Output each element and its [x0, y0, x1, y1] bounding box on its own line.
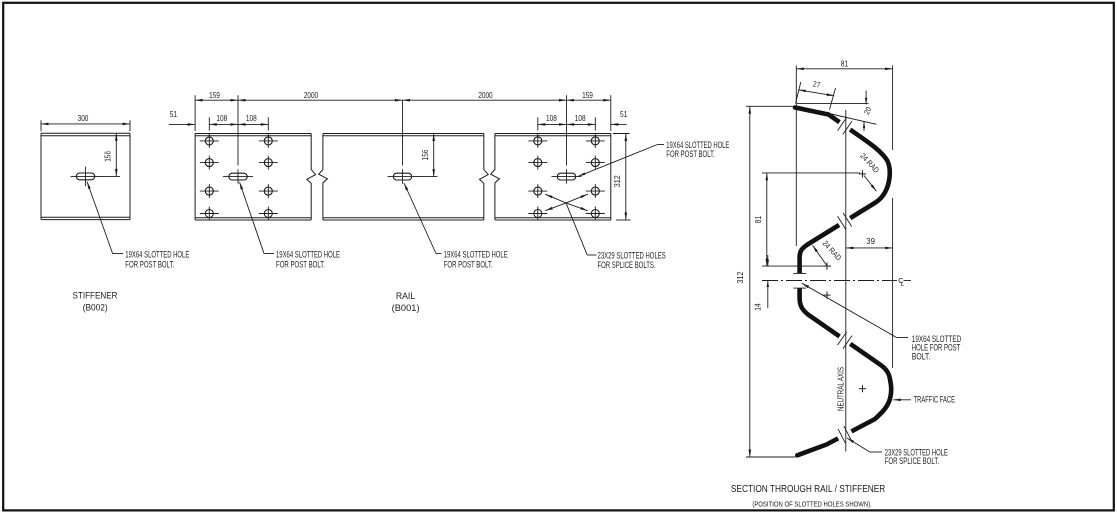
svg-text:FOR POST BOLT.: FOR POST BOLT. — [666, 149, 715, 159]
svg-text:NEUTRAL AXIS: NEUTRAL AXIS — [836, 367, 845, 411]
svg-text:108: 108 — [575, 114, 586, 123]
svg-text:2000: 2000 — [304, 91, 319, 100]
svg-text:312: 312 — [736, 272, 745, 284]
svg-text:27: 27 — [812, 79, 821, 89]
svg-text:SECTION THROUGH RAIL / STIFFEN: SECTION THROUGH RAIL / STIFFENER — [731, 484, 885, 495]
svg-text:156: 156 — [104, 151, 113, 162]
svg-text:159: 159 — [582, 91, 593, 100]
svg-text:L: L — [901, 282, 905, 288]
svg-text:19X64 SLOTTED HOLE: 19X64 SLOTTED HOLE — [444, 250, 508, 260]
svg-text:(POSITION OF SLOTTED HOLES SHO: (POSITION OF SLOTTED HOLES SHOWN). — [752, 499, 872, 508]
svg-text:81: 81 — [754, 216, 763, 223]
svg-text:108: 108 — [216, 114, 227, 123]
svg-text:FOR SPLICE BOLTS.: FOR SPLICE BOLTS. — [598, 260, 656, 270]
svg-text:23X29 SLOTTED HOLES: 23X29 SLOTTED HOLES — [598, 250, 666, 260]
svg-text:19X64 SLOTTED HOLE: 19X64 SLOTTED HOLE — [276, 250, 340, 260]
svg-text:2000: 2000 — [478, 91, 493, 100]
svg-text:159: 159 — [209, 91, 220, 100]
svg-text:FOR POST BOLT.: FOR POST BOLT. — [276, 260, 325, 270]
svg-text:FOR SPLICE BOLT.: FOR SPLICE BOLT. — [885, 456, 939, 466]
svg-text:312: 312 — [613, 175, 622, 187]
svg-text:BOLT.: BOLT. — [912, 351, 931, 361]
svg-text:20: 20 — [862, 105, 873, 116]
svg-text:(B001): (B001) — [392, 303, 420, 314]
svg-text:STIFFENER: STIFFENER — [73, 291, 118, 302]
svg-text:108: 108 — [246, 114, 257, 123]
svg-text:51: 51 — [170, 110, 177, 119]
svg-text:24 RAD: 24 RAD — [820, 239, 843, 263]
svg-text:19X64 SLOTTED HOLE: 19X64 SLOTTED HOLE — [125, 250, 189, 260]
svg-text:300: 300 — [78, 114, 89, 123]
svg-text:81: 81 — [841, 60, 848, 69]
svg-text:TRAFFIC FACE: TRAFFIC FACE — [914, 394, 955, 404]
svg-text:FOR POST BOLT.: FOR POST BOLT. — [444, 260, 493, 270]
svg-text:FOR POST BOLT.: FOR POST BOLT. — [125, 260, 174, 270]
svg-text:14: 14 — [753, 303, 762, 311]
svg-text:39: 39 — [866, 237, 875, 246]
svg-text:RAIL: RAIL — [396, 291, 415, 302]
svg-text:156: 156 — [421, 150, 430, 161]
svg-text:24 RAD: 24 RAD — [858, 151, 881, 175]
svg-text:108: 108 — [546, 114, 557, 123]
svg-text:(B002): (B002) — [83, 303, 108, 314]
svg-text:51: 51 — [620, 110, 627, 119]
